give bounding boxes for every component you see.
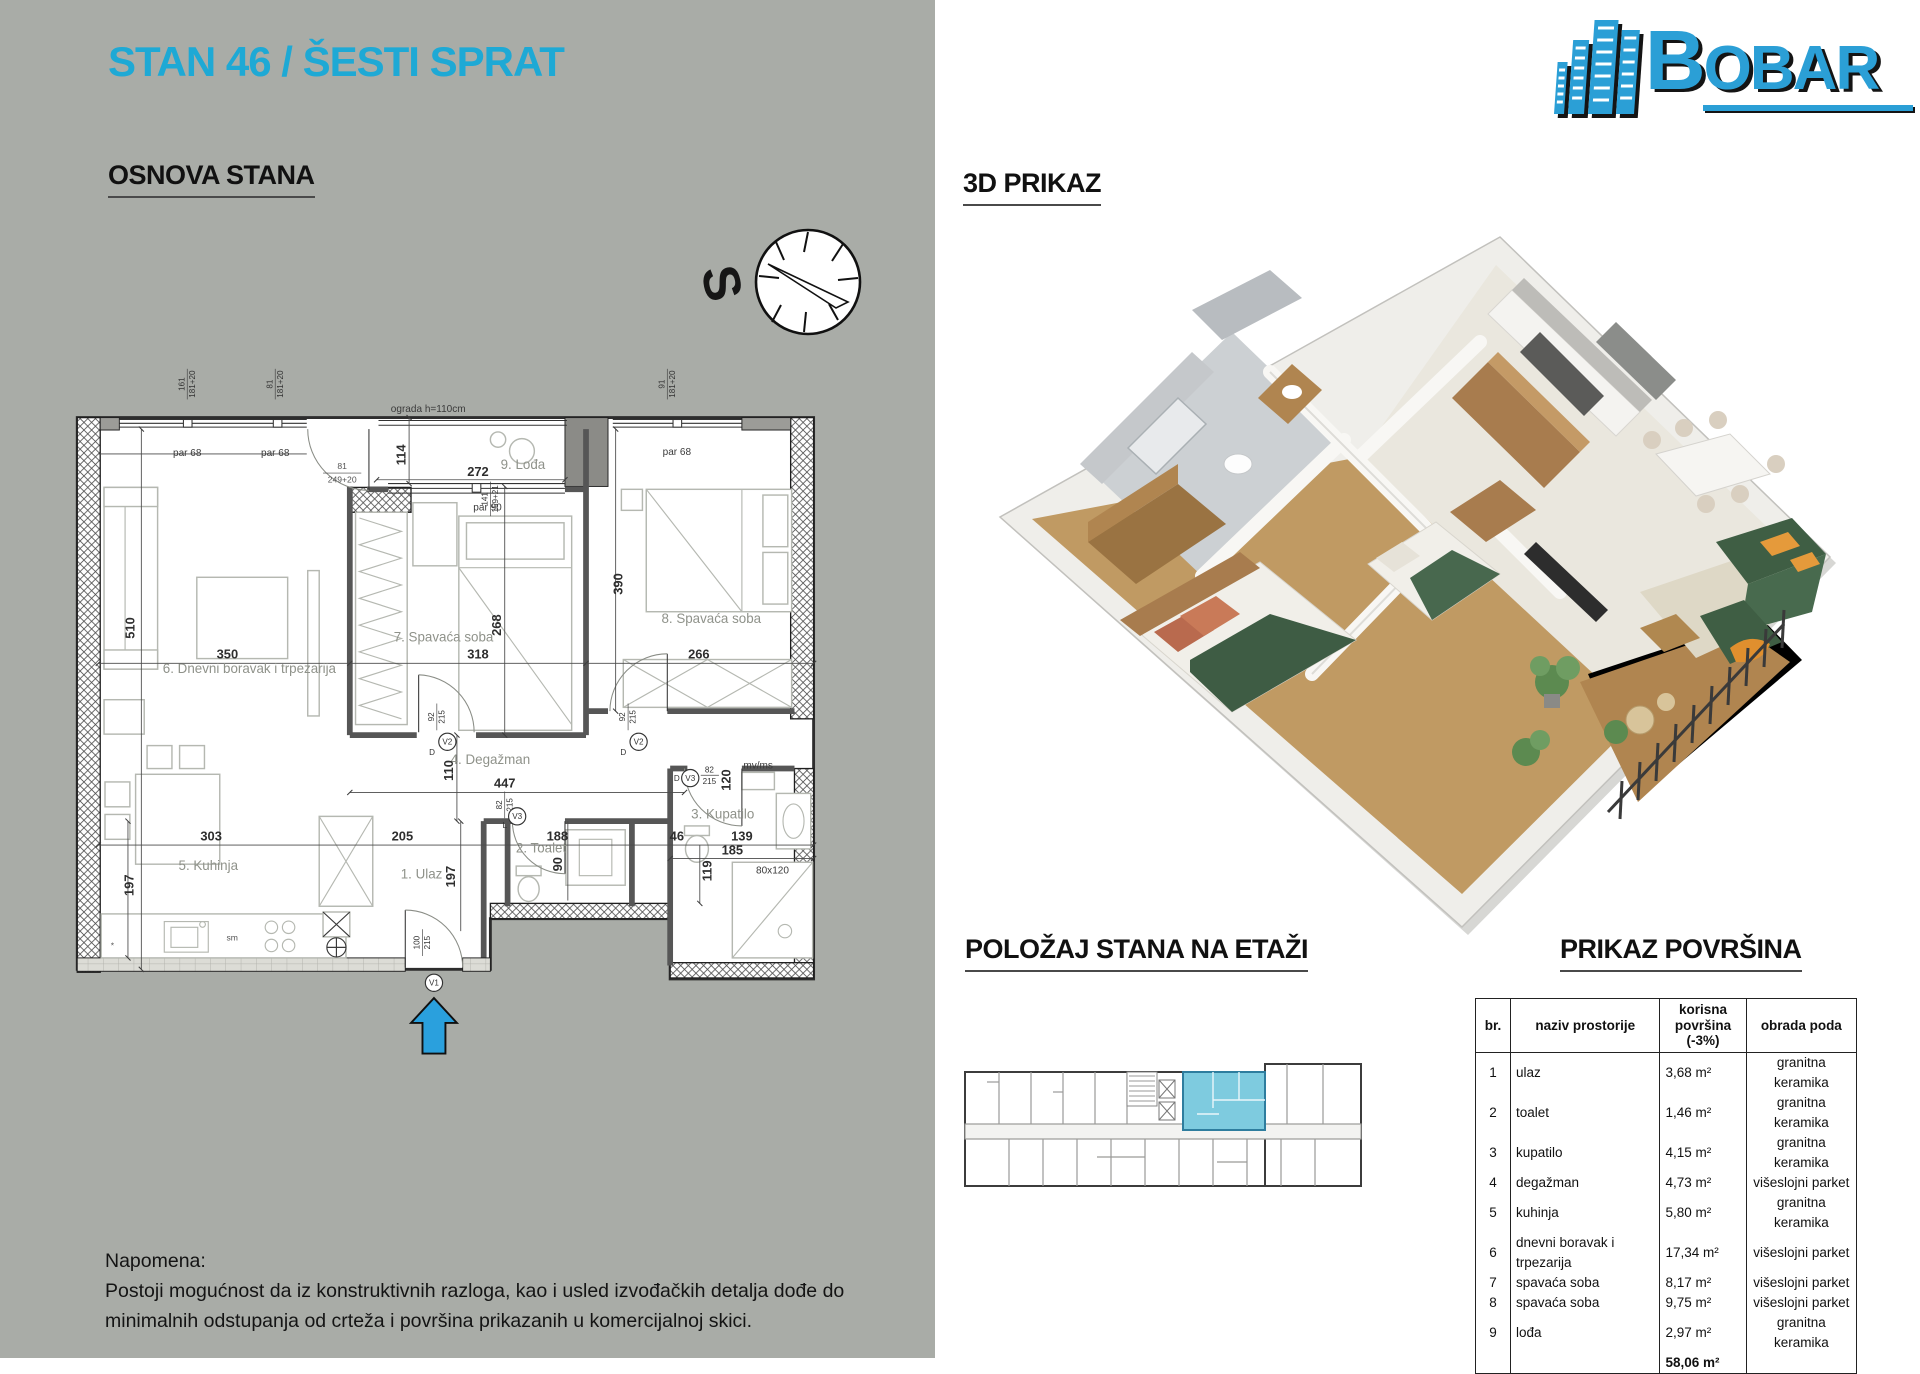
window-label-2: 81 181+20: [265, 369, 285, 400]
dim-447: 447: [494, 776, 516, 791]
compass-letter: S: [689, 260, 753, 306]
svg-text:120: 120: [718, 769, 733, 791]
room-ulaz: 1. Ulaz: [401, 867, 443, 882]
svg-text:D: D: [429, 748, 435, 757]
table-row: 4degažman4,73 m²višeslojni parket: [1476, 1173, 1857, 1193]
label-sm: sm: [226, 933, 237, 943]
render-3d: [940, 212, 1860, 947]
col-obrada: obrada poda: [1746, 999, 1856, 1053]
table-row: 2toalet1,46 m²granitna keramika: [1476, 1093, 1857, 1133]
svg-text:215: 215: [629, 710, 638, 724]
svg-text:91: 91: [657, 379, 666, 389]
dim-90: 90: [550, 857, 565, 871]
table-row: 5kuhinja5,80 m²granitna keramika: [1476, 1193, 1857, 1233]
svg-text:215: 215: [423, 935, 432, 949]
right-panel: BOBAR 3D PRIKAZ: [935, 0, 1920, 1358]
room-kupatilo: 3. Kupatilo: [691, 806, 754, 821]
balcony-door-top: 81: [337, 461, 347, 471]
svg-text:82: 82: [495, 800, 504, 810]
svg-text:215: 215: [703, 777, 717, 786]
svg-text:161: 161: [177, 377, 186, 391]
svg-text:92: 92: [427, 712, 436, 722]
section-osnova-stana: OSNOVA STANA: [108, 160, 315, 198]
svg-text:215: 215: [437, 710, 446, 724]
room-bedroom8: 8. Spavaća soba: [661, 611, 761, 626]
loggia-chair: [1657, 693, 1675, 711]
window-label-1: 161 181+20: [177, 369, 197, 400]
table-row: 1ulaz3,68 m²granitna keramika: [1476, 1052, 1857, 1093]
area-table-wrap: br. naziv prostorije korisna površina (-…: [1475, 998, 1857, 1374]
dim-139: 139: [731, 828, 753, 843]
left-panel: STAN 46 / ŠESTI SPRAT OSNOVA STANA S: [0, 0, 935, 1358]
highlighted-unit: [1183, 1072, 1265, 1130]
dim-510: 510: [123, 617, 138, 639]
svg-text:D: D: [674, 774, 680, 783]
bobar-logo: BOBAR: [1553, 10, 1913, 130]
table-total-row: 58,06 m²: [1476, 1353, 1857, 1374]
page-title: STAN 46 / ŠESTI SPRAT: [108, 38, 564, 86]
svg-text:D: D: [620, 748, 626, 757]
compass-dial: [756, 230, 860, 334]
svg-text:82: 82: [705, 765, 715, 774]
dim-188: 188: [547, 828, 569, 843]
dim-350: 350: [217, 647, 239, 662]
dim-46: 46: [670, 828, 684, 843]
dim-266: 266: [688, 647, 710, 662]
section-3d-prikaz: 3D PRIKAZ: [963, 168, 1101, 206]
label-ograda: ograda h=110cm: [391, 404, 466, 415]
building-plan: [957, 1052, 1377, 1217]
col-naziv: naziv prostorije: [1511, 999, 1660, 1053]
table-row: 3kupatilo4,15 m²granitna keramika: [1476, 1133, 1857, 1173]
logo-rest: OBAR: [1704, 34, 1879, 103]
svg-text:181+20: 181+20: [668, 370, 677, 398]
room-living: 6. Dnevni boravak i trpezarija: [163, 661, 337, 676]
svg-text:81: 81: [265, 379, 274, 389]
label-par68-2: par 68: [261, 448, 290, 459]
note-text: Postoji mogućnost da iz konstruktivnih r…: [105, 1276, 885, 1336]
section-povrsine: PRIKAZ POVRŠINA: [1560, 934, 1802, 972]
table-row: 8spavaća soba9,75 m²višeslojni parket: [1476, 1293, 1857, 1313]
svg-text:L: L: [502, 821, 507, 830]
dim-197-left: 197: [122, 874, 137, 896]
svg-text:100: 100: [413, 935, 422, 949]
svg-text:181+20: 181+20: [188, 370, 197, 398]
logo-text: BOBAR: [1645, 18, 1878, 102]
col-povrsina: korisna površina (-3%): [1660, 999, 1746, 1053]
dim-303: 303: [200, 828, 222, 843]
floor-plan: *: [55, 365, 855, 1065]
label-shower: 80x120: [756, 866, 789, 877]
dim-110: 110: [441, 760, 456, 781]
table-row: 7spavaća soba8,17 m²višeslojni parket: [1476, 1273, 1857, 1293]
room-kitchen: 5. Kuhinja: [179, 858, 239, 873]
table-row: 6dnevni boravak i trpezarija17,34 m²više…: [1476, 1233, 1857, 1273]
window-label-3: 91 181+20: [657, 369, 677, 400]
svg-text:V3: V3: [685, 774, 695, 783]
svg-text:92: 92: [618, 712, 627, 722]
logo-underline: [1703, 105, 1913, 111]
col-br: br.: [1476, 999, 1511, 1053]
area-table: br. naziv prostorije korisna površina (-…: [1475, 998, 1857, 1374]
note-label: Napomena:: [105, 1246, 885, 1276]
total-area: 58,06 m²: [1660, 1353, 1746, 1374]
svg-text:141: 141: [481, 492, 490, 506]
dim-318: 318: [467, 647, 489, 662]
dim-114: 114: [393, 444, 408, 466]
table-row: 9lođa2,97 m²granitna keramika: [1476, 1313, 1857, 1353]
compass: S: [680, 218, 880, 348]
loggia-table: [1626, 706, 1654, 734]
dim-119: 119: [699, 860, 714, 881]
entrance-arrow: [411, 998, 457, 1053]
svg-text:V2: V2: [634, 738, 644, 747]
section-polozaj: POLOŽAJ STANA NA ETAŽI: [965, 934, 1308, 972]
dim-272: 272: [467, 464, 489, 479]
dim-268: 268: [489, 614, 504, 636]
svg-text:V2: V2: [442, 738, 452, 747]
label-par68-1: par 68: [173, 448, 202, 459]
dim-390: 390: [610, 573, 625, 595]
room-bedroom7: 7. Spavaća soba: [394, 629, 494, 644]
logo-first-letter: B: [1645, 13, 1704, 107]
dim-205: 205: [392, 828, 414, 843]
svg-text:159+21: 159+21: [491, 485, 500, 513]
bath-wall: [1192, 270, 1302, 340]
svg-text:V3: V3: [512, 812, 522, 821]
note: Napomena: Postoji mogućnost da iz konstr…: [105, 1246, 885, 1337]
label-par68-3: par 68: [663, 447, 692, 458]
dim-185: 185: [722, 843, 744, 858]
balcony-door-bottom: 249+20: [328, 475, 357, 485]
room-loggia: 9. Lođa: [501, 457, 546, 472]
svg-text:V1: V1: [429, 979, 439, 988]
room-degazman: 4. Degažman: [451, 752, 531, 767]
svg-text:181+20: 181+20: [276, 370, 285, 398]
dim-197-ulaz: 197: [443, 866, 458, 888]
label-mvms: mv/ms: [743, 761, 773, 772]
